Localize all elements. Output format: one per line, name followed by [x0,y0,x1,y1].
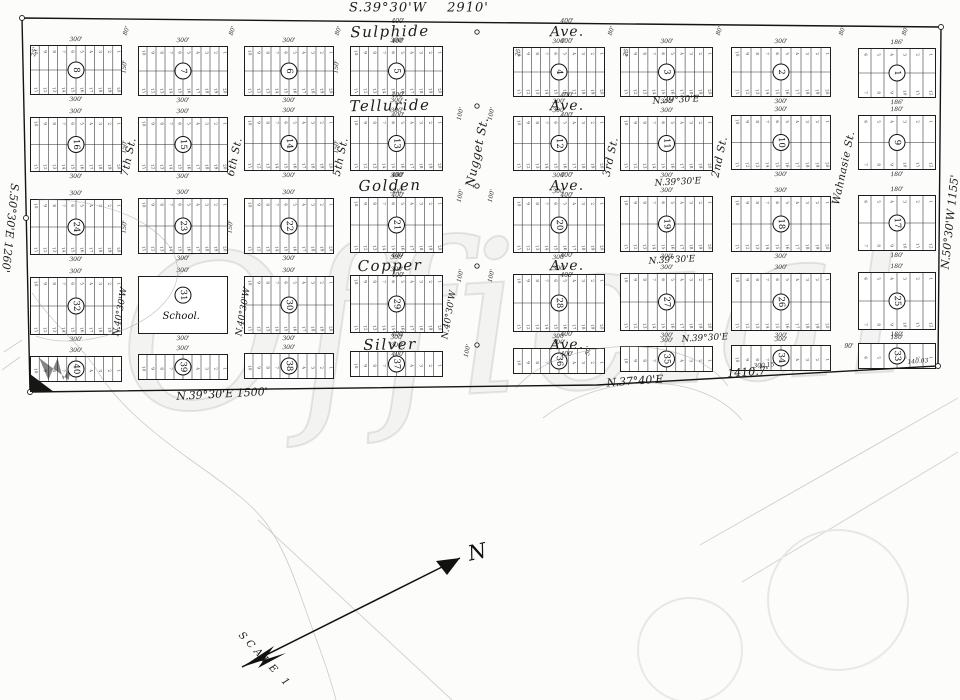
street-label-wahnasie-st-: Wahnasie St. [831,130,857,206]
block-24: 101191281371461551641731821912024 [30,199,122,255]
svg-text:24: 24 [71,221,81,232]
block-1-top-dim: 186' [890,40,903,46]
block-30-top-dim: 300' [282,267,295,273]
svg-text:29: 29 [391,298,401,309]
block-18: 101191281371461551641731821912018 [731,196,831,252]
interior-bearing: N.39°30'E [681,333,728,344]
avenue-label-sulphide: Sulphide [350,24,430,40]
block-29: 101191281371461551641731821912029 [350,275,443,333]
block-5: 10119128137146155164173182191205 [350,46,443,96]
block-9: 6758493102111129 [858,115,936,170]
boundary-bearing-top: S.39°30'W [349,2,427,15]
block-3: 10119128137146155164173182191203 [620,47,713,97]
block-21: 101191281371461551641731821912021 [350,197,443,253]
svg-text:33: 33 [892,350,902,361]
svg-text:14: 14 [284,138,294,149]
svg-text:16: 16 [71,139,81,150]
interior-bearing: N.39°30'E [652,95,699,106]
avenue-dim: 400' [391,113,404,119]
avenue-dim: 400' [391,19,404,25]
block-18-bottom-dim: 300' [774,254,787,260]
block-25: 67584931021111225 [858,272,936,330]
svg-text:7: 7 [178,68,188,74]
svg-text:18: 18 [776,218,786,229]
avenue-label-golden: Golden [358,178,421,194]
avenue-dim: 400' [560,19,573,25]
avenue-dim: 400' [560,113,573,119]
svg-text:23: 23 [178,221,188,232]
avenue-dim: 400' [560,39,573,45]
svg-text:9: 9 [892,140,902,146]
avenue-dim: 400' [560,352,573,358]
block-27: 101191281371461551641731821912027 [620,273,713,331]
avenue-dim: 400' [560,93,573,99]
block-38: 1098765432138 [244,353,334,379]
avenue-dim: 400' [560,253,573,259]
svg-text:1: 1 [892,70,902,76]
block-16-top-dim: 300' [69,109,82,115]
block-17: 67584931021111217 [858,195,936,251]
avenue-label-silver: Silver [363,337,417,353]
block-14-bottom-dim: 300' [282,173,295,179]
interior-bearing: N.39°30'E [648,255,695,266]
dim-label: 80' [229,26,238,37]
boundary-bearing-left: S.50°30'E 1260' [0,183,20,273]
svg-text:28: 28 [554,297,564,308]
svg-text:30: 30 [284,299,294,310]
block-3-top-dim: 300' [660,39,673,45]
block-2-top-dim: 300' [774,39,787,45]
svg-text:26: 26 [776,296,786,307]
svg-text:8: 8 [71,67,81,73]
block-28: 101191281371461551641731821912028 [513,274,605,332]
map-layer: 10119128137146155164173182191208300'300'… [0,0,960,700]
dim-label: 80' [123,26,132,37]
street-label-nugget-st-: Nugget St. [464,116,491,188]
avenue-dim: 400' [391,253,404,259]
block-11-top-dim: 300' [660,107,673,113]
block-31-top-dim: 300' [176,268,189,274]
block-13: 101191281371461551641731821912013 [350,116,443,171]
block-30: 101191281371461551641731821912030 [244,276,334,334]
boundary-bearing-bottom-left: N.39°30'E 1500' [176,386,268,402]
avenue-dim: 400' [391,93,404,99]
svg-text:21: 21 [391,220,401,231]
block-8-top-dim: 300' [69,37,82,43]
block-26: 101191281371461551641731821912026 [731,273,831,331]
block-38-top-dim: 300' [282,345,295,351]
dim-label: 80' [608,26,617,37]
dim-label: 150' [121,220,128,234]
dim-label: 150' [227,220,234,234]
block-24-bottom-dim: 300' [69,257,82,263]
svg-text:5: 5 [391,68,401,74]
block-27-top-dim: 300' [660,265,673,271]
block-7: 10119128137146155164173182191207 [138,46,228,96]
svg-text:39: 39 [178,362,188,373]
interior-bearing: N.40°30'W [441,290,458,340]
block-26-top-dim: 300' [774,265,787,271]
street-label-2nd-st-: 2nd St. [711,135,730,178]
block-24-top-dim: 300' [69,191,82,197]
block-32-bottom-dim: 300' [69,337,82,343]
block-25-top-dim: 180' [890,264,903,270]
boundary-bearing-bottom-right: N.37°40'E [606,374,664,389]
block-32-top-dim: 300' [69,269,82,275]
block-19-top-dim: 300' [660,188,673,194]
svg-text:11: 11 [661,138,671,149]
block-22-top-dim: 300' [282,190,295,196]
svg-text:32: 32 [71,300,81,311]
block-33: 65432133 [858,343,936,369]
block-7-bottom-dim: 300' [176,97,189,103]
block-8-bottom-dim: 300' [69,97,82,103]
boundary-distance-top: 2910' [447,2,489,15]
dim-label: 100' [488,107,497,121]
svg-text:25: 25 [892,296,902,307]
block-18-top-dim: 300' [774,188,787,194]
block-6: 10119128137146155164173182191206 [244,46,334,96]
svg-text:17: 17 [892,218,902,229]
dim-label: 100' [488,269,497,283]
svg-text:38: 38 [284,360,294,371]
dim-label: 80' [902,26,911,37]
svg-text:2: 2 [776,70,786,76]
block-30-bottom-dim: 300' [282,335,295,341]
dim-label: 90' [844,344,853,350]
svg-text:10: 10 [776,137,786,148]
dim-label: 100' [464,344,473,358]
block-6-top-dim: 300' [282,38,295,44]
dim-label: 150' [333,60,340,74]
avenue-label-copper: Copper [357,258,422,274]
block-16: 101191281371461551641731821912016 [30,117,122,172]
avenue-dim: 400' [391,352,404,358]
avenue-dim: 400' [560,193,573,199]
svg-text:4: 4 [554,69,564,75]
svg-text:3: 3 [661,69,671,75]
avenue-dim: 400' [560,273,573,279]
block-22: 101191281371461551641731821912022 [244,198,334,254]
avenue-dim: 400' [391,173,404,179]
block-2-bottom-dim: 300' [774,99,787,105]
block-39-top-dim: 300' [176,346,189,352]
block-40-top-dim: 300' [69,348,82,354]
dim-label: 100' [488,189,497,203]
avenue-dim: 400' [391,193,404,199]
block-14-top-dim: 300' [282,108,295,114]
svg-text:34: 34 [776,352,786,363]
plat-map: Official 1011912813714615516417318219120… [0,0,960,700]
avenue-dim: 400' [560,173,573,179]
block-33-top-dim: 180' [890,335,903,341]
block-23-bottom-dim: 300' [176,256,189,262]
block-10-bottom-dim: 300' [774,172,787,178]
svg-text:27: 27 [661,297,671,308]
block-17-top-dim: 180' [890,187,903,193]
dim-label: 100' [457,269,466,283]
block-1: 6758493102111121 [858,48,936,98]
block-6-bottom-dim: 300' [282,98,295,104]
block-15-top-dim: 300' [176,109,189,115]
dim-label: 80' [335,26,344,37]
svg-text:6: 6 [284,68,294,74]
block-19: 101191281371461551641731821912019 [620,196,713,252]
svg-text:School.: School. [163,311,200,322]
svg-text:40: 40 [71,364,81,375]
block-16-bottom-dim: 300' [69,174,82,180]
avenue-dim: 400' [391,273,404,279]
block-4: 10119128137146155164173182191204 [513,47,605,97]
dim-label: 100' [457,189,466,203]
block-8: 10119128137146155164173182191208 [30,45,122,95]
block-32: 101191281371461551641731821912032 [30,277,122,335]
block-17-bottom-dim: 180' [890,253,903,259]
block-10: 101191281371461551641731821912010 [731,115,831,170]
block-31-bottom-dim: 300' [176,336,189,342]
dim-label: 80' [839,26,848,37]
block-10-top-dim: 300' [774,107,787,113]
block-15-bottom-dim: 300' [176,174,189,180]
block-2: 10119128137146155164173182191202 [731,47,831,97]
block-34-top-dim: 300' [774,336,787,342]
block-23: 101191281371461551641731821912023 [138,198,228,254]
block-7-top-dim: 300' [176,37,189,43]
block-14: 101191281371461551641731821912014 [244,116,334,171]
avenue-dim: 400' [560,332,573,338]
dim-label: 150' [121,60,128,74]
avenue-dim: 400' [391,332,404,338]
svg-text:22: 22 [284,220,294,231]
svg-text:15: 15 [178,139,188,150]
block-31: School.31 [138,276,228,334]
avenue-dim: 400' [391,39,404,45]
dim-label: 80' [716,26,725,37]
block-9-bottom-dim: 180' [890,172,903,178]
svg-text:13: 13 [391,138,401,149]
boundary-bearing-right: N.50°30'W 1155' [940,174,960,269]
interior-bearing: N.39°30'E [654,177,701,188]
svg-text:19: 19 [661,219,671,230]
svg-text:20: 20 [554,219,564,230]
block-23-top-dim: 300' [176,190,189,196]
street-label-6th-st-: 6th St. [226,137,244,178]
avenue-label-telluride: Telluride [349,98,430,114]
block-12: 101191281371461551641731821912012 [513,116,605,171]
dim-label: 100' [457,107,466,121]
block-22-bottom-dim: 300' [282,256,295,262]
block-35-top-dim: 300' [660,338,673,344]
block-40: 1098765432140 [30,356,122,382]
block-20: 101191281371461551641731821912020 [513,197,605,253]
block-11: 101191281371461551641731821912011 [620,116,713,171]
block-35: 1098765432135 [620,346,713,372]
svg-text:35: 35 [661,354,671,365]
block-15: 101191281371461551641731821912015 [138,117,228,172]
svg-text:31: 31 [178,290,188,301]
block-9-top-dim: 180' [890,107,903,113]
block-39: 1098765432139 [138,354,228,380]
svg-text:37: 37 [391,358,401,369]
svg-text:12: 12 [554,138,564,149]
